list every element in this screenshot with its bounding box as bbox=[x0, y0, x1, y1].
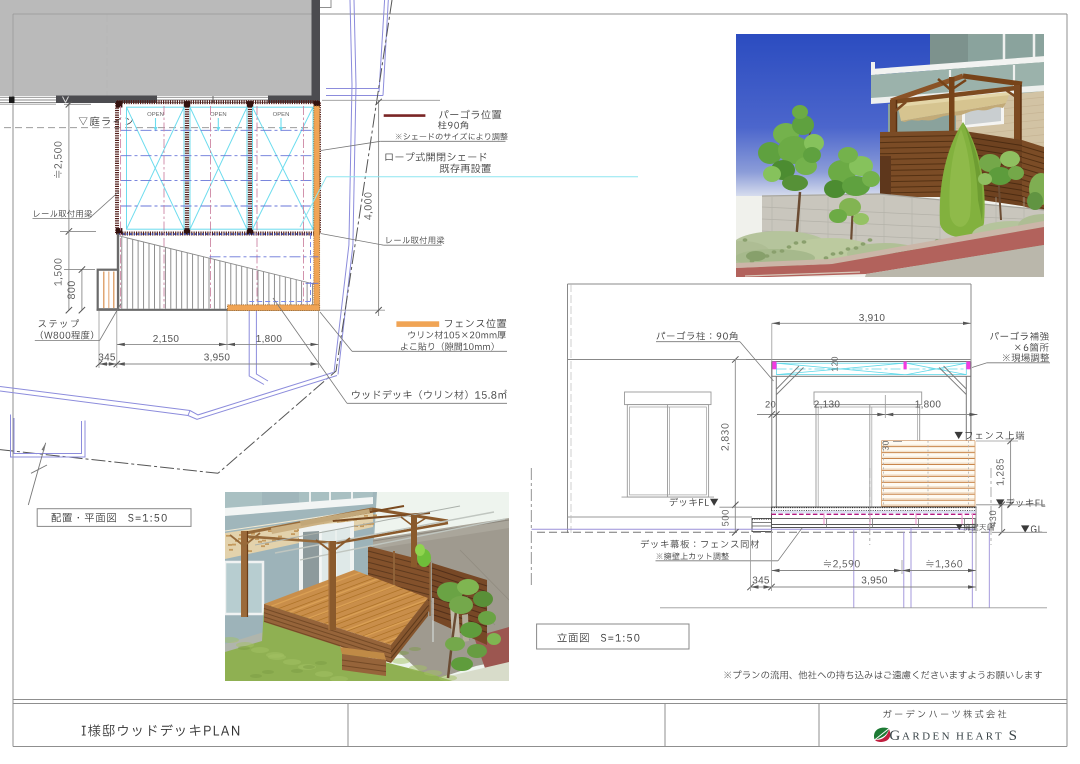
svg-text:2,130: 2,130 bbox=[814, 400, 841, 411]
svg-text:2,150: 2,150 bbox=[153, 334, 180, 345]
svg-text:OPEN: OPEN bbox=[147, 112, 164, 118]
svg-text:1,800: 1,800 bbox=[915, 400, 942, 411]
svg-text:HEART: HEART bbox=[956, 731, 1004, 743]
svg-text:345: 345 bbox=[98, 353, 116, 364]
svg-text:G: G bbox=[889, 728, 900, 744]
svg-text:20: 20 bbox=[765, 399, 776, 410]
svg-text:1,800: 1,800 bbox=[256, 334, 283, 345]
svg-text:OPEN: OPEN bbox=[273, 112, 290, 118]
svg-text:S: S bbox=[1009, 728, 1018, 744]
svg-text:3,950: 3,950 bbox=[861, 576, 888, 587]
svg-text:3,910: 3,910 bbox=[859, 313, 886, 324]
svg-text:OPEN: OPEN bbox=[210, 112, 227, 118]
svg-text:ARDEN: ARDEN bbox=[902, 731, 952, 743]
svg-text:345: 345 bbox=[752, 576, 770, 587]
svg-text:3,950: 3,950 bbox=[204, 353, 231, 364]
